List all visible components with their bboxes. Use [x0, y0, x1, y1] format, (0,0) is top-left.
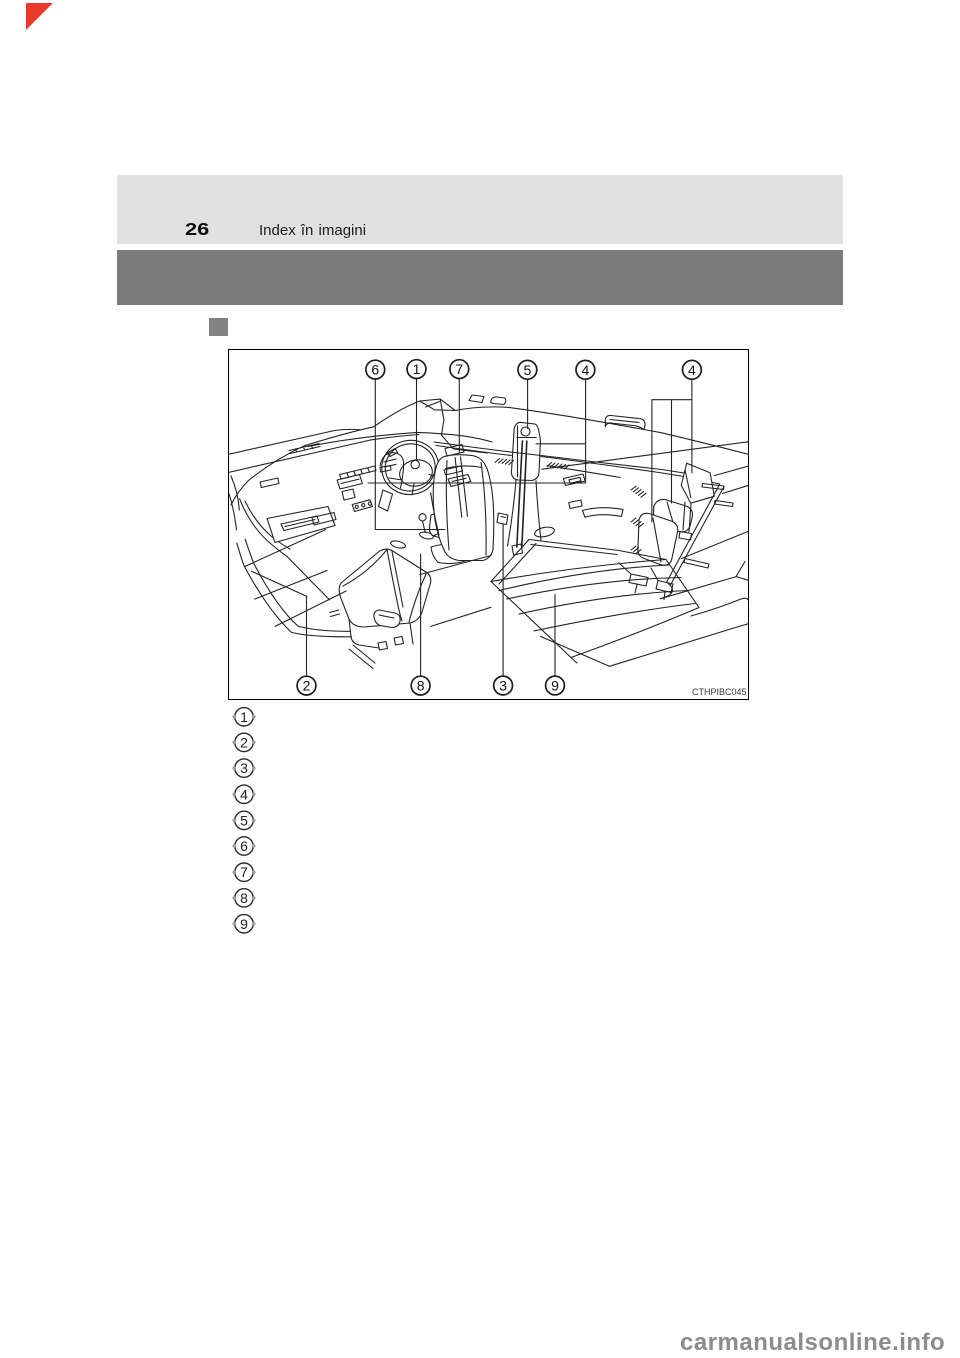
svg-text:8: 8 [416, 678, 424, 694]
svg-text:1: 1 [412, 361, 420, 377]
svg-text:3: 3 [499, 678, 507, 694]
svg-text:4: 4 [240, 786, 248, 802]
svg-text:8: 8 [240, 890, 248, 906]
svg-text:7: 7 [455, 361, 463, 377]
svg-text:1: 1 [240, 709, 248, 725]
svg-text:5: 5 [523, 362, 531, 378]
svg-text:2: 2 [302, 678, 310, 694]
svg-text:3: 3 [240, 760, 248, 776]
svg-text:5: 5 [240, 812, 248, 828]
svg-text:6: 6 [371, 362, 379, 378]
svg-text:6: 6 [240, 838, 248, 854]
svg-text:4: 4 [581, 362, 589, 378]
svg-text:7: 7 [240, 864, 248, 880]
svg-text:9: 9 [240, 916, 248, 932]
svg-text:4: 4 [688, 362, 696, 378]
svg-text:2: 2 [240, 734, 248, 750]
svg-text:9: 9 [551, 678, 559, 694]
